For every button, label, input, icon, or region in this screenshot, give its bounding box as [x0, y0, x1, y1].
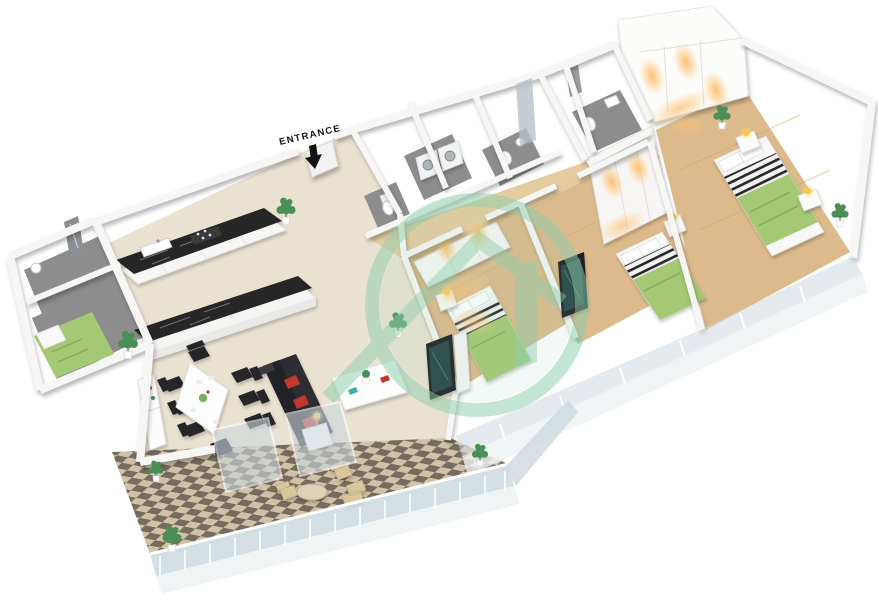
outdoor-table — [297, 484, 327, 500]
plant-master-2 — [831, 203, 848, 227]
watermark-bar — [515, 260, 537, 368]
floor-plan-svg: ENTRANCE — [0, 0, 878, 600]
sink — [31, 263, 41, 273]
floor-plan-image: ENTRANCE — [0, 0, 878, 600]
